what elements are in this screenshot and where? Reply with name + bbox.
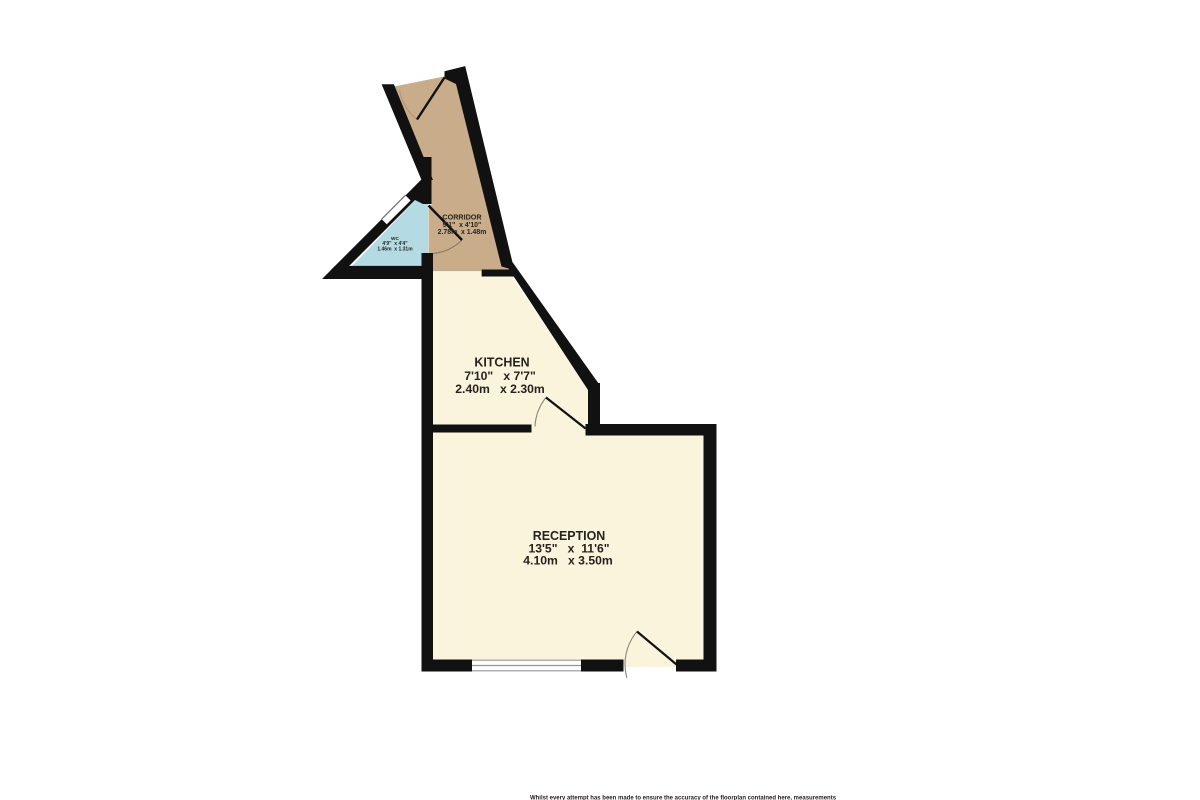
svg-text:CORRIDOR: CORRIDOR (442, 213, 482, 222)
svg-text:9'1" x 4'10": 9'1" x 4'10" (443, 222, 482, 229)
svg-text:KITCHEN: KITCHEN (474, 356, 529, 370)
svg-text:7'10" x 7'7": 7'10" x 7'7" (464, 369, 536, 383)
svg-text:2.40m x 2.30m: 2.40m x 2.30m (455, 382, 545, 396)
svg-text:1.46m x 1.31m: 1.46m x 1.31m (377, 246, 413, 252)
svg-text:2.78m x 1.48m: 2.78m x 1.48m (438, 229, 487, 236)
svg-text:4.10m x 3.50m: 4.10m x 3.50m (523, 554, 613, 568)
svg-text:Whilst every attempt has been: Whilst every attempt has been made to en… (530, 796, 837, 800)
